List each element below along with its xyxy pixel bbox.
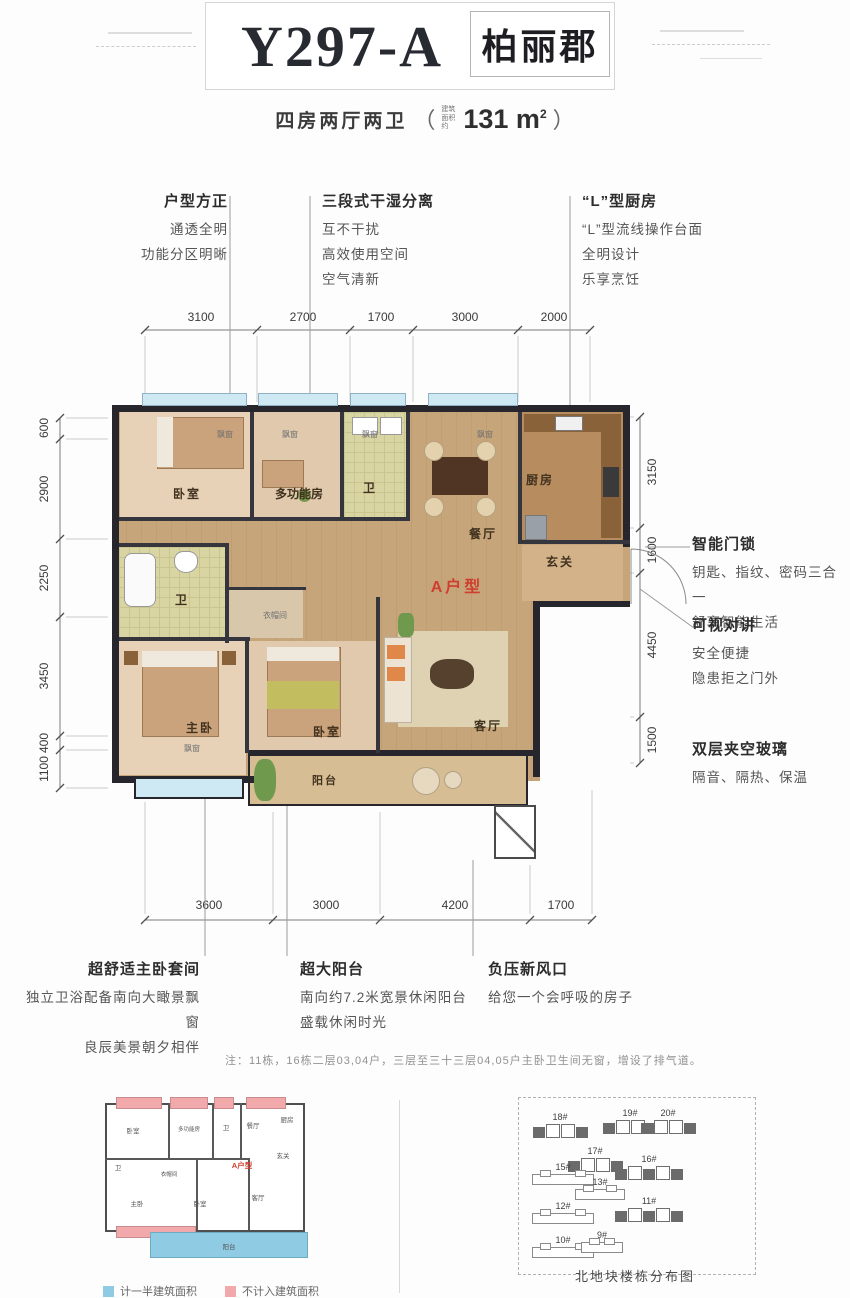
label-bedroom3: 卧室 <box>297 723 357 740</box>
label-master: 主卧 <box>170 719 230 736</box>
building-label: 11# <box>612 1196 686 1206</box>
bed-pillows <box>142 651 217 667</box>
mini-label: 餐厅 <box>238 1120 268 1130</box>
balcony-table <box>412 767 440 795</box>
label-bay: 飘窗 <box>172 743 212 754</box>
mini-label: 客厅 <box>243 1192 273 1202</box>
bay-window <box>350 393 406 406</box>
building-label: 9# <box>578 1230 626 1240</box>
legend-swatch-blue <box>103 1286 114 1297</box>
interior-wall <box>119 543 229 547</box>
mini-label: 主卧 <box>122 1198 152 1208</box>
interior-wall <box>119 517 410 521</box>
bed-blanket <box>267 681 339 709</box>
chair-furniture <box>476 441 496 461</box>
plan-cutout <box>540 607 630 781</box>
interior-wall <box>250 412 254 520</box>
mini-wall <box>196 1158 198 1230</box>
building-icon <box>612 1208 686 1222</box>
room-balcony <box>248 754 528 806</box>
mini-label: 卧室 <box>118 1125 148 1135</box>
label-unit-type: A户型 <box>422 573 492 597</box>
wall <box>112 405 119 783</box>
bay-window-master <box>134 777 244 799</box>
column-divider <box>399 1100 400 1293</box>
interior-wall <box>376 597 380 753</box>
note-text: 注：11栋，16栋二层03,04户，三层至三十三层04,05户主卧卫生间无窗，增… <box>225 1052 702 1068</box>
legend-excluded-area: 不计入建筑面积 <box>225 1283 319 1298</box>
interior-wall <box>119 637 250 641</box>
mini-wall <box>240 1103 242 1158</box>
coffee-table <box>430 659 474 689</box>
label-multifunction: 多功能房 <box>260 485 338 502</box>
chair-furniture <box>476 497 496 517</box>
mini-label: 玄关 <box>268 1150 298 1160</box>
balcony-chair <box>444 771 462 789</box>
building-18: 18# <box>530 1112 590 1138</box>
building-icon <box>581 1242 623 1253</box>
nightstand <box>124 651 138 665</box>
chair-furniture <box>424 497 444 517</box>
toilet <box>174 551 198 573</box>
building-label: 16# <box>612 1154 686 1164</box>
mini-label: 多功能房 <box>168 1125 210 1133</box>
label-dining: 餐厅 <box>453 525 513 542</box>
legend-half-area: 计一半建筑面积 <box>103 1283 197 1298</box>
building-9: 9# <box>578 1230 626 1253</box>
label-bay: 飘窗 <box>270 429 310 440</box>
sofa-cushion <box>387 645 405 659</box>
building-label: 13# <box>572 1177 628 1187</box>
bed-pillows <box>267 647 339 661</box>
label-bay: 飘窗 <box>465 429 505 440</box>
mini-bay-pink <box>246 1097 286 1109</box>
fridge <box>525 515 547 540</box>
bay-window <box>428 393 518 406</box>
mini-bay-pink <box>116 1097 162 1109</box>
nightstand <box>222 651 236 665</box>
interior-wall <box>228 587 306 590</box>
label-bay: 飘窗 <box>350 429 390 440</box>
legend-label: 计一半建筑面积 <box>120 1283 197 1298</box>
interior-wall <box>340 412 344 520</box>
desk-furniture <box>262 460 304 488</box>
chair-furniture <box>424 441 444 461</box>
interior-wall <box>518 540 630 544</box>
building-icon <box>638 1120 698 1134</box>
kitchen-stove <box>603 467 619 497</box>
mini-label-unit: A户型 <box>222 1160 262 1171</box>
label-foyer: 玄关 <box>530 553 590 570</box>
wall <box>248 750 540 756</box>
building-icon <box>530 1124 590 1138</box>
mini-label: 阳台 <box>214 1241 244 1251</box>
interior-wall <box>245 637 249 753</box>
mini-bay-pink <box>170 1097 208 1109</box>
equipment-platform <box>494 805 536 859</box>
interior-wall <box>225 543 229 643</box>
building-icon <box>532 1213 594 1224</box>
floorplan-poster: Y297-A 柏丽郡 四房两厅两卫 （ 建筑面积约 131 m2 ） 户型方正 … <box>0 0 850 1298</box>
legend-swatch-pink <box>225 1286 236 1297</box>
label-bath2: 卫 <box>350 479 390 496</box>
bed-pillows <box>157 417 173 467</box>
wall <box>623 405 630 547</box>
mini-label: 衣帽间 <box>152 1170 186 1178</box>
building-20: 20# <box>638 1108 698 1134</box>
mini-bay-pink <box>214 1097 234 1109</box>
floor-plan: 卧室 多功能房 卫 餐厅 厨房 玄关 卫 衣帽间 主卧 卧室 客厅 阳台 A户型… <box>112 405 658 805</box>
mini-label: 卫 <box>212 1122 240 1132</box>
bathtub <box>124 553 156 607</box>
label-living: 客厅 <box>458 717 518 734</box>
balcony-plant <box>254 759 276 801</box>
mini-label: 厨房 <box>272 1114 302 1124</box>
building-12: 12# <box>530 1201 596 1224</box>
kitchen-sink <box>555 416 583 431</box>
building-label: 18# <box>530 1112 590 1122</box>
wall <box>533 601 630 607</box>
building-11: 11# <box>612 1196 686 1222</box>
dining-table <box>432 457 488 495</box>
label-kitchen: 厨房 <box>510 471 570 488</box>
label-bedroom2: 卧室 <box>157 485 217 502</box>
label-cloakroom: 衣帽间 <box>245 610 305 621</box>
mini-label: 卫 <box>106 1162 130 1172</box>
label-bath1: 卫 <box>157 591 207 608</box>
wall <box>112 405 630 412</box>
label-balcony: 阳台 <box>295 772 355 788</box>
interior-wall <box>406 412 410 520</box>
label-bay: 飘窗 <box>205 429 245 440</box>
mini-label: 卧室 <box>185 1198 215 1208</box>
site-map-caption: 北地块楼栋分布图 <box>545 1266 725 1285</box>
sofa-cushion <box>387 667 405 681</box>
building-label: 20# <box>638 1108 698 1118</box>
bay-window <box>258 393 338 406</box>
bay-window <box>142 393 247 406</box>
plant <box>398 613 414 637</box>
legend-label: 不计入建筑面积 <box>242 1283 319 1298</box>
